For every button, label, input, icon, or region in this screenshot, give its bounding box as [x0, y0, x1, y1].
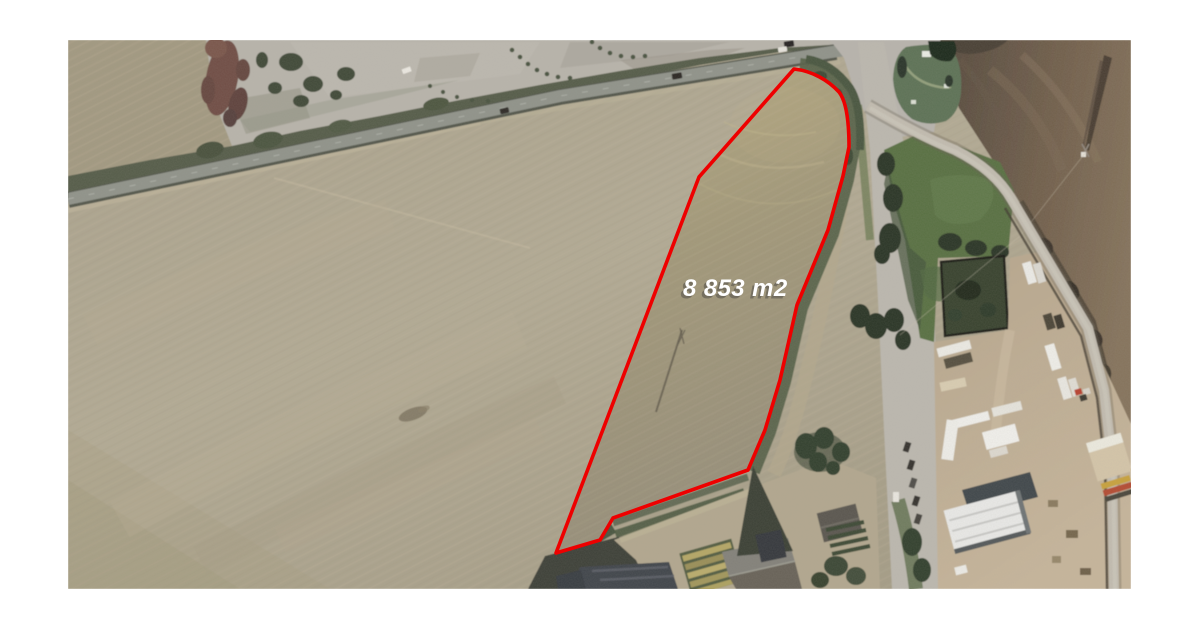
- svg-text:8 853 m2: 8 853 m2: [683, 275, 788, 302]
